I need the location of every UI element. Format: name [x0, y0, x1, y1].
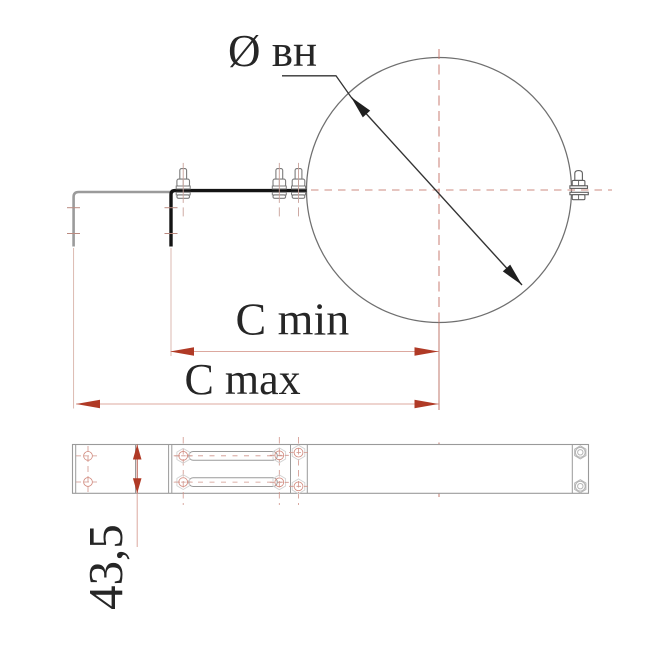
svg-text:43,5: 43,5 [78, 524, 133, 610]
svg-text:Ø вн: Ø вн [228, 26, 317, 76]
svg-text:C max: C max [185, 355, 301, 404]
svg-text:C min: C min [236, 294, 350, 345]
